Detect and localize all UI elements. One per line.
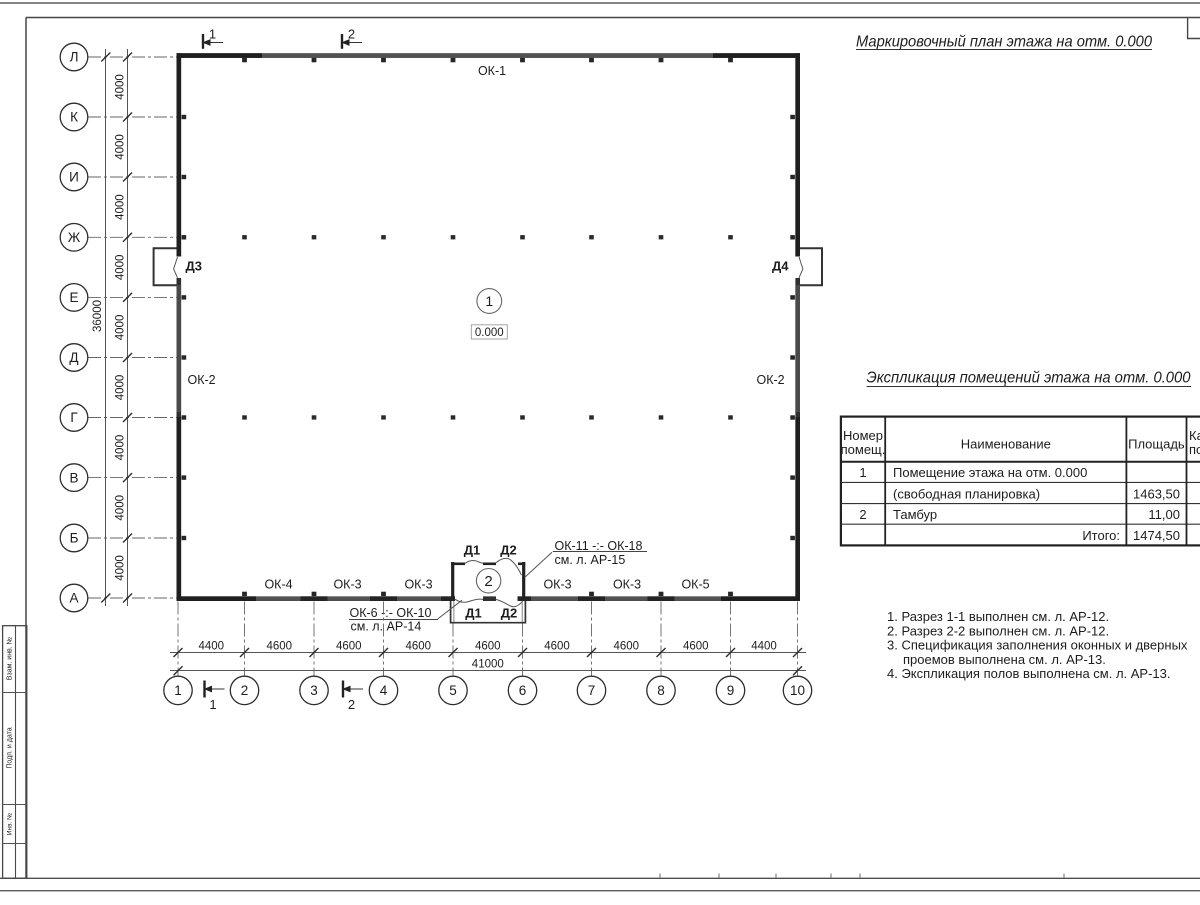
svg-text:Площадь: Площадь — [1128, 437, 1185, 452]
svg-text:4000: 4000 — [115, 315, 127, 341]
svg-text:1: 1 — [485, 293, 493, 309]
svg-text:4600: 4600 — [405, 640, 431, 652]
svg-text:9: 9 — [727, 683, 735, 698]
svg-text:36000: 36000 — [92, 300, 104, 332]
svg-text:7: 7 — [588, 683, 596, 698]
svg-text:4000: 4000 — [115, 194, 127, 220]
svg-text:Подп. и дата: Подп. и дата — [7, 727, 14, 768]
svg-text:1463,50: 1463,50 — [1133, 486, 1180, 501]
svg-text:ОК-5: ОК-5 — [681, 578, 709, 592]
svg-text:см. л. АР-15: см. л. АР-15 — [555, 553, 626, 567]
svg-text:Помещение этажа на отм. 0.000: Помещение этажа на отм. 0.000 — [893, 465, 1087, 480]
svg-text:ОК-3: ОК-3 — [333, 578, 361, 592]
svg-text:1: 1 — [859, 465, 866, 480]
svg-text:Наименование: Наименование — [961, 437, 1051, 452]
svg-text:4000: 4000 — [115, 555, 127, 581]
svg-text:3: 3 — [310, 683, 318, 698]
svg-text:ОК-1: ОК-1 — [478, 64, 506, 78]
svg-text:помещ.: помещ. — [841, 442, 886, 457]
svg-text:0.000: 0.000 — [475, 327, 504, 339]
svg-text:см. л. АР-14: см. л. АР-14 — [351, 620, 422, 634]
svg-text:Д1: Д1 — [464, 543, 481, 558]
svg-text:Д: Д — [69, 350, 78, 365]
svg-text:ОК-3: ОК-3 — [613, 578, 641, 592]
svg-text:8: 8 — [657, 683, 665, 698]
svg-text:Д4: Д4 — [772, 259, 789, 274]
svg-text:1: 1 — [174, 683, 182, 698]
svg-text:2: 2 — [241, 683, 249, 698]
svg-text:Маркировочный план этажа на от: Маркировочный план этажа на отм. 0.000 — [856, 34, 1152, 51]
svg-text:4000: 4000 — [115, 134, 127, 160]
svg-text:Ка: Ка — [1189, 428, 1200, 443]
svg-text:Тамбур: Тамбур — [893, 507, 937, 522]
svg-text:4000: 4000 — [115, 495, 127, 521]
svg-text:2: 2 — [484, 573, 492, 590]
svg-text:4000: 4000 — [115, 74, 127, 100]
svg-text:Л: Л — [70, 50, 79, 65]
svg-text:ОК-2: ОК-2 — [757, 373, 785, 387]
svg-text:К: К — [70, 110, 78, 125]
svg-text:Инв. №: Инв. № — [7, 813, 14, 835]
svg-text:1: 1 — [209, 27, 216, 42]
svg-text:Итого:: Итого: — [1082, 528, 1120, 543]
svg-text:4600: 4600 — [683, 640, 709, 652]
svg-text:ОК-2: ОК-2 — [188, 373, 216, 387]
svg-text:4400: 4400 — [751, 640, 777, 652]
svg-text:4600: 4600 — [544, 640, 570, 652]
svg-text:по: по — [1189, 442, 1200, 457]
svg-text:Экспликация помещений этажа на: Экспликация помещений этажа на отм. 0.00… — [867, 370, 1191, 387]
svg-text:4: 4 — [380, 683, 388, 698]
svg-text:4600: 4600 — [336, 640, 362, 652]
svg-text:4600: 4600 — [475, 640, 501, 652]
svg-text:Е: Е — [69, 290, 78, 305]
svg-text:4600: 4600 — [613, 640, 639, 652]
svg-text:Д2: Д2 — [501, 606, 518, 621]
svg-text:ОК-11 -:- ОК-18: ОК-11 -:- ОК-18 — [555, 539, 643, 553]
svg-text:1. Разрез 1-1 выполнен см. л.: 1. Разрез 1-1 выполнен см. л. АР-12. — [887, 609, 1109, 624]
svg-text:проемов выполнена см. л. АР-13: проемов выполнена см. л. АР-13. — [903, 652, 1106, 667]
svg-text:ОК-6 -:- ОК-10: ОК-6 -:- ОК-10 — [350, 606, 432, 620]
svg-text:11,00: 11,00 — [1148, 507, 1180, 522]
svg-text:2. Разрез 2-2 выполнен см. л.: 2. Разрез 2-2 выполнен см. л. АР-12. — [887, 623, 1109, 638]
svg-text:4000: 4000 — [115, 255, 127, 281]
svg-text:1474,50: 1474,50 — [1133, 528, 1180, 543]
svg-text:Ж: Ж — [68, 230, 81, 245]
svg-text:2: 2 — [348, 697, 355, 712]
svg-text:И: И — [69, 170, 79, 185]
svg-text:Д3: Д3 — [186, 259, 203, 274]
svg-text:6: 6 — [519, 683, 527, 698]
svg-text:ОК-3: ОК-3 — [404, 578, 432, 592]
svg-text:ОК-3: ОК-3 — [543, 578, 571, 592]
svg-text:ОК-4: ОК-4 — [264, 578, 292, 592]
svg-text:Номер: Номер — [843, 428, 883, 443]
svg-text:4400: 4400 — [198, 640, 224, 652]
svg-text:4000: 4000 — [115, 435, 127, 461]
svg-text:3. Спецификация заполнения око: 3. Спецификация заполнения оконных и две… — [887, 638, 1188, 653]
svg-text:Г: Г — [70, 410, 78, 425]
svg-text:А: А — [69, 591, 78, 606]
svg-text:41000: 41000 — [472, 659, 504, 671]
svg-text:В: В — [69, 470, 78, 485]
svg-text:2: 2 — [859, 507, 866, 522]
svg-text:4000: 4000 — [115, 375, 127, 401]
svg-text:Взам. инв. №: Взам. инв. № — [7, 637, 14, 680]
svg-text:4. Экспликация полов выполнена: 4. Экспликация полов выполнена см. л. АР… — [887, 666, 1171, 681]
svg-text:Б: Б — [70, 531, 79, 546]
svg-text:5: 5 — [449, 683, 457, 698]
svg-text:4600: 4600 — [266, 640, 292, 652]
svg-text:Д1: Д1 — [465, 606, 482, 621]
svg-text:10: 10 — [790, 683, 805, 698]
svg-text:Д2: Д2 — [500, 543, 517, 558]
svg-text:(свободная планировка): (свободная планировка) — [893, 486, 1040, 501]
svg-text:2: 2 — [348, 27, 355, 42]
svg-text:1: 1 — [209, 697, 216, 712]
